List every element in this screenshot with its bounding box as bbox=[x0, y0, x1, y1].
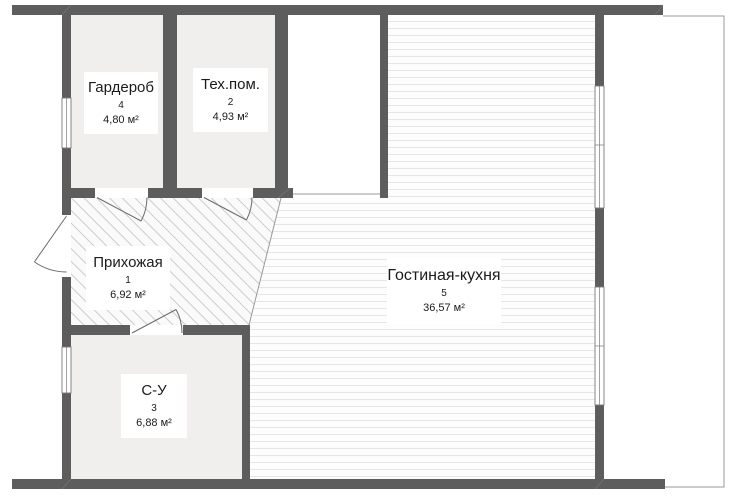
wall-techroom-right bbox=[275, 5, 288, 198]
room-label-techroom: Тех.пом. 2 4,93 м² bbox=[193, 68, 268, 132]
wall-bottom bbox=[12, 479, 665, 489]
room-name: С-У bbox=[141, 383, 166, 400]
room-name: Гостиная-кухня bbox=[387, 267, 500, 285]
room-area: 6,88 м² bbox=[136, 417, 172, 429]
room-label-livingkitchen: Гостиная-кухня 5 36,57 м² bbox=[387, 257, 501, 324]
wall-hallway-top-c bbox=[253, 188, 293, 198]
room-name: Гардероб bbox=[88, 80, 154, 97]
room-area: 4,80 м² bbox=[103, 114, 139, 126]
room-number: 1 bbox=[125, 275, 131, 286]
room-name: Прихожая bbox=[93, 255, 163, 272]
balcony-outline bbox=[663, 16, 724, 487]
wall-hallway-top-b bbox=[148, 188, 202, 198]
room-label-hallway: Прихожая 1 6,92 м² bbox=[86, 246, 170, 310]
window-wardrobe bbox=[62, 98, 71, 148]
room-number: 2 bbox=[228, 97, 234, 108]
door-entrance bbox=[34, 215, 71, 277]
wall-shaft-right bbox=[380, 5, 388, 198]
wall-wardrobe-techroom bbox=[163, 5, 177, 198]
room-area: 36,57 м² bbox=[423, 302, 465, 314]
room-number: 4 bbox=[118, 100, 124, 111]
room-label-bathroom: С-У 3 6,88 м² bbox=[121, 374, 187, 438]
wall-top bbox=[12, 5, 663, 15]
room-number: 3 bbox=[151, 403, 157, 414]
wall-bathroom-top-b bbox=[183, 325, 250, 335]
room-area: 6,92 м² bbox=[110, 289, 146, 301]
window-living-lower bbox=[595, 287, 604, 405]
window-living-upper bbox=[595, 86, 604, 208]
room-number: 5 bbox=[441, 288, 447, 299]
floor-plan: Гардероб 4 4,80 м² Тех.пом. 2 4,93 м² Пр… bbox=[0, 0, 741, 502]
room-livingkitchen-floor bbox=[250, 15, 595, 479]
room-name: Тех.пом. bbox=[201, 77, 260, 94]
wall-hallway-top-a bbox=[62, 188, 95, 198]
room-area: 4,93 м² bbox=[213, 111, 249, 123]
wall-right bbox=[595, 5, 604, 489]
wall-bathroom-right bbox=[242, 325, 250, 489]
window-bathroom bbox=[62, 347, 71, 393]
wall-bathroom-top-a bbox=[62, 325, 130, 335]
room-label-wardrobe: Гардероб 4 4,80 м² bbox=[84, 72, 158, 134]
